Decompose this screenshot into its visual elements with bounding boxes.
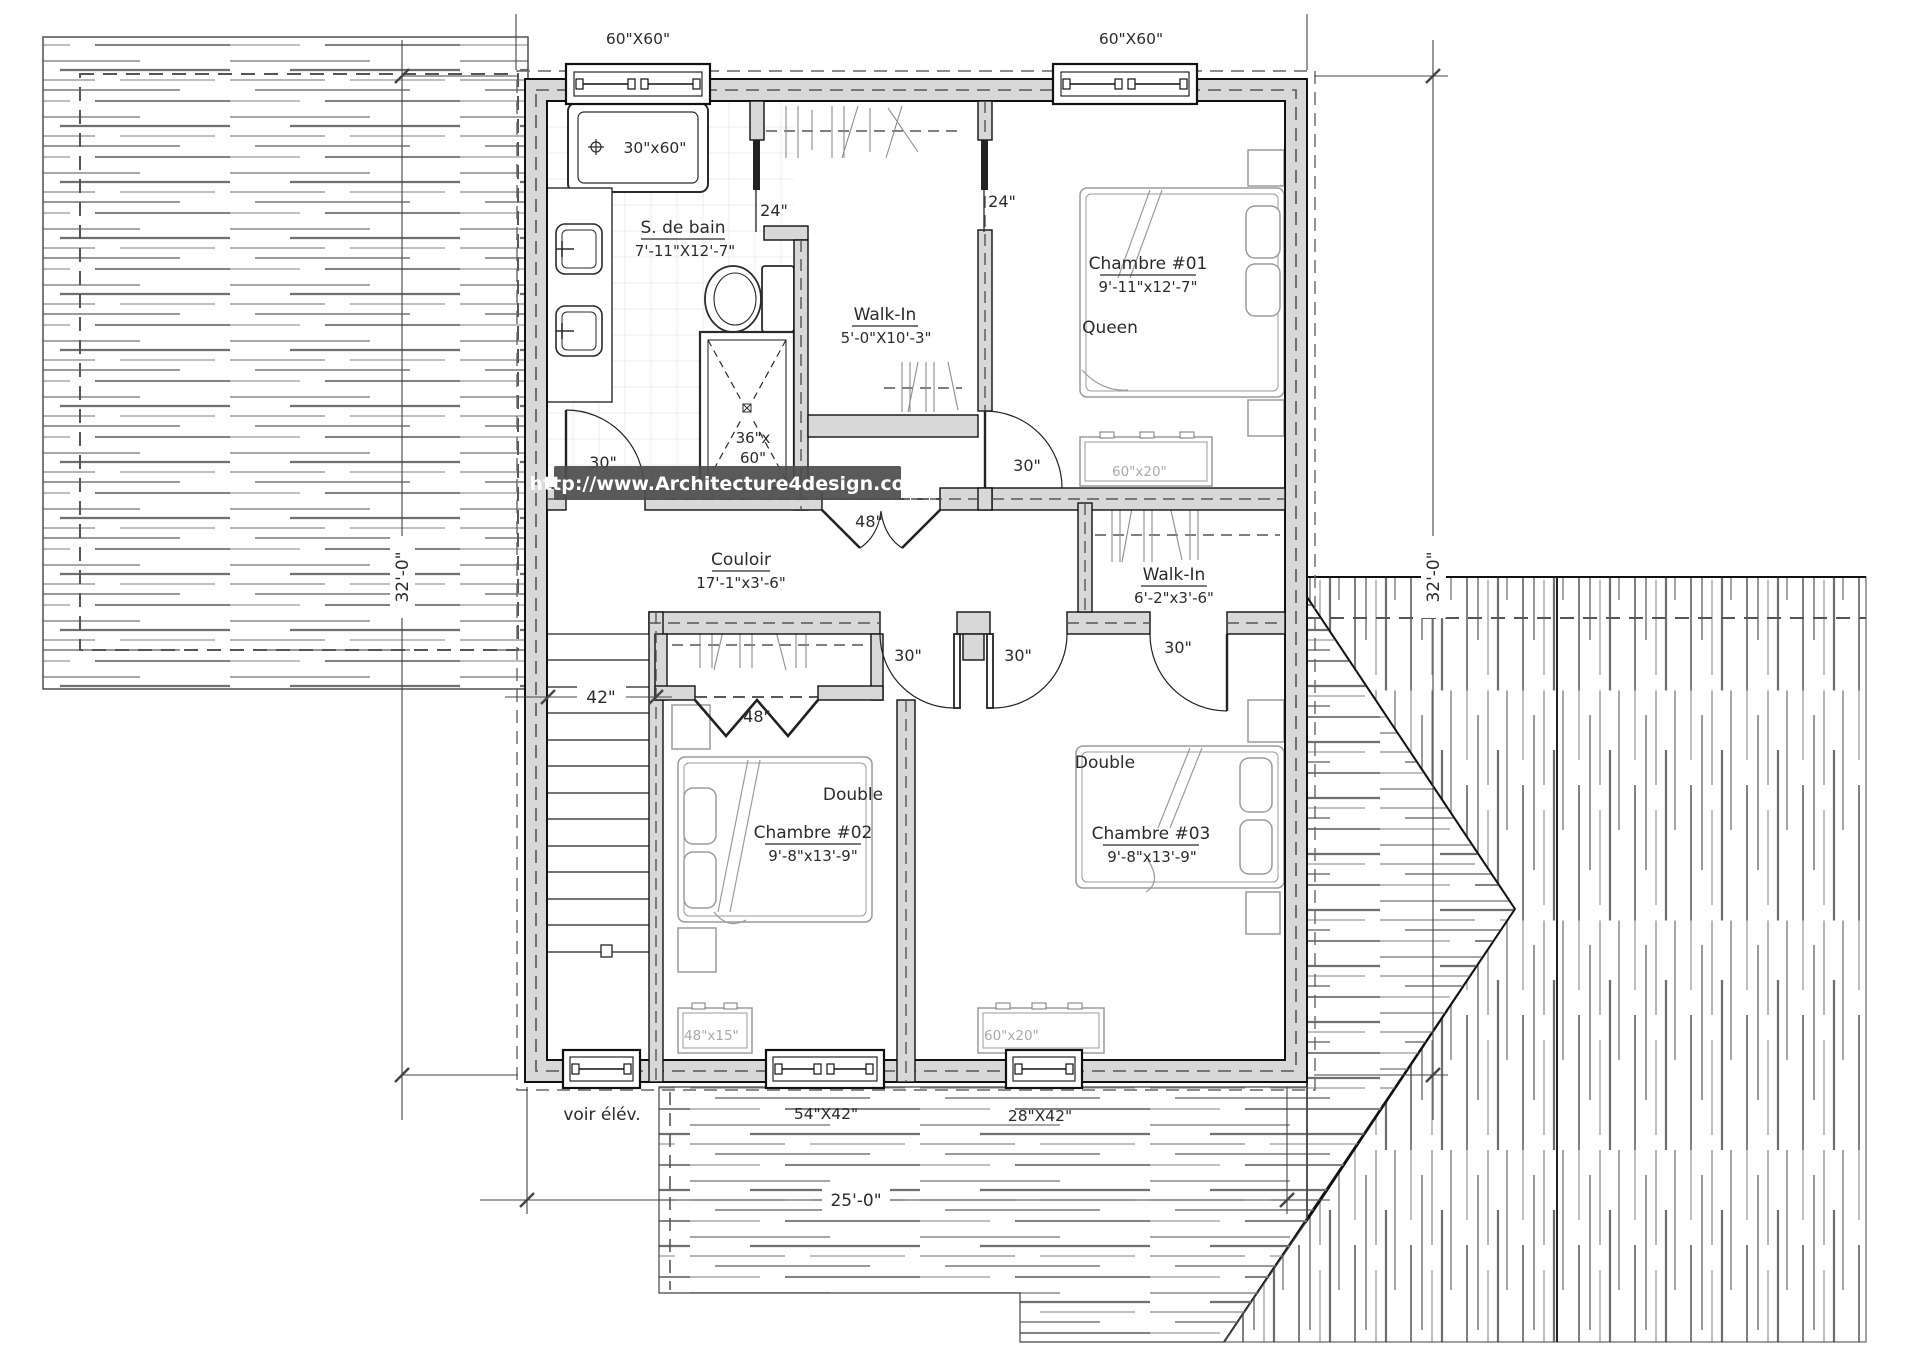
label-door-bedroom1: 30" [1013,456,1041,475]
label-dresser-bedroom2: 48"x15" [684,1028,739,1044]
nightstand [1248,150,1284,186]
label-bathroom-name: S. de bain [641,218,726,238]
window-bottom-right [1006,1050,1082,1088]
vanity-sinks [547,188,612,402]
wall-walkin1-south [808,415,978,437]
label-door-bedroom3: 30" [1004,646,1032,665]
label-bathroom-dims: 7'-11"X12'-7" [635,242,735,260]
window-top-left [566,64,710,104]
label-dresser-bedroom3: 60"x20" [984,1028,1039,1044]
label-elevation-note: voir élév. [563,1105,640,1125]
label-bedroom3-name: Chambre #03 [1092,824,1211,844]
closet2-wall-bottom-b [818,686,883,700]
label-dim-width: 25'-0" [830,1191,881,1211]
nightstand [1248,400,1284,436]
label-bed3-type: Double [1075,753,1135,773]
wall-pocket-stub-left [750,101,764,140]
label-bed-queen: Queen [1082,318,1138,338]
label-pocket-left: 24" [760,201,788,220]
label-bedroom1-name: Chambre #01 [1089,254,1208,274]
label-bed2-type: Double [823,785,883,805]
label-dim-stairs: 42" [586,688,615,708]
label-window-bottom-right: 28"X42" [1008,1107,1072,1125]
label-dresser-bedroom1: 60"x20" [1112,464,1167,480]
window-top-right [1053,64,1197,104]
watermark: http://www.Architecture4design.com [530,466,925,500]
label-door-bedroom2: 30" [894,646,922,665]
label-door-walkin2: 30" [1164,638,1192,657]
label-couloir-name: Couloir [711,550,771,570]
wall-walkin2-west [1078,503,1092,612]
label-pocket-right: 24" [988,192,1016,211]
window-bottom-left [563,1050,640,1088]
label-door-closet: 48" [743,707,771,726]
label-shower-length: 60" [740,449,766,467]
label-bedroom2-name: Chambre #02 [754,823,873,843]
roof-left [43,37,528,689]
floor-plan-drawing: 60"X60" 60"X60" 30"x60" S. de bain 7'-11… [0,0,1920,1362]
label-door-walkin1: 48" [855,512,883,531]
label-shower-width: 36"x [736,429,771,447]
label-bedroom1-dims: 9'-11"x12'-7" [1098,278,1197,296]
toilet [705,266,794,332]
wall-corner [978,488,992,510]
pocket-door-left [753,140,760,190]
floor-plan-page: 60"X60" 60"X60" 30"x60" S. de bain 7'-11… [0,0,1920,1362]
nightstand [678,928,716,972]
label-dim-left: 32'-0" [393,551,413,602]
wall-jog [764,226,808,240]
label-walkin2-dims: 6'-2"x3'-6" [1134,589,1214,607]
label-bedroom3-dims: 9'-8"x13'-9" [1107,848,1196,866]
label-bedroom2-dims: 9'-8"x13'-9" [768,847,857,865]
nightstand [1246,892,1280,934]
roof-bottom [659,1087,1307,1342]
label-window-top-left: 60"X60" [606,30,670,48]
label-walkin1-dims: 5'-0"X10'-3" [841,329,932,347]
label-window-bottom-center: 54"X42" [794,1105,858,1123]
pocket-door-right [981,140,988,190]
window-bottom-center [766,1050,884,1088]
label-walkin1-name: Walk-In [854,305,917,325]
label-dim-right: 32'-0" [1424,551,1444,602]
wall-couloir-south-b [957,612,990,634]
label-bathtub: 30"x60" [624,139,687,157]
watermark-url: http://www.Architecture4design.com [530,473,925,495]
nightstand [1248,700,1284,742]
label-walkin2-name: Walk-In [1143,565,1206,585]
label-couloir-dims: 17'-1"x3'-6" [696,574,785,592]
label-window-top-right: 60"X60" [1099,30,1163,48]
wall-door-stub [963,634,984,660]
